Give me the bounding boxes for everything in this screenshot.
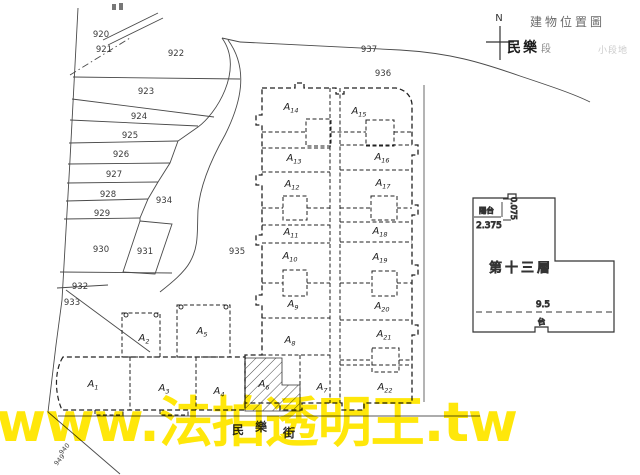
unit-label-a19: A19 bbox=[371, 252, 387, 265]
parcel-label: 923 bbox=[138, 87, 154, 97]
unit-label-a15: A15 bbox=[350, 106, 366, 119]
parcel-label: 927 bbox=[106, 170, 122, 180]
parcel-label: 929 bbox=[94, 209, 110, 219]
parcel-label: 934 bbox=[156, 196, 172, 206]
parcel-label: 930 bbox=[93, 245, 109, 255]
site-plan-scan: 920 921 922 923 924 925 926 927 928 929 … bbox=[0, 0, 640, 475]
unit-label-a12: A12 bbox=[283, 179, 299, 192]
parcel-label: 925 bbox=[122, 131, 138, 141]
floor13-plan: 陽台 0.075 2.375 9.5 台 第十三層 bbox=[473, 194, 614, 332]
double-track-lines bbox=[103, 13, 163, 45]
section-suffix: 段 bbox=[541, 42, 551, 55]
parcel-label: 932 bbox=[72, 282, 88, 292]
parcel-label: 926 bbox=[113, 150, 129, 160]
parcel-label: 933 bbox=[64, 298, 80, 308]
unit-label-a9: A9 bbox=[287, 299, 299, 312]
unit-label-a5: A5 bbox=[196, 326, 208, 339]
watermark-text: www.法拍透明王.tw bbox=[0, 396, 640, 450]
section-name: 民樂 bbox=[507, 39, 539, 56]
ink-marks bbox=[112, 3, 123, 10]
parcel-label: 920 bbox=[93, 30, 109, 40]
parcel-label: 935 bbox=[229, 247, 245, 257]
building-inner-walls bbox=[262, 88, 412, 403]
parcel-label: 931 bbox=[137, 247, 153, 257]
map-header: N 建物位置圖 民樂 段 小段地 bbox=[486, 13, 628, 60]
unit-label-a21: A21 bbox=[375, 329, 391, 342]
survey-point-circles bbox=[124, 305, 228, 317]
unit-label-a18: A18 bbox=[371, 226, 387, 239]
unit-label-a17: A17 bbox=[374, 178, 391, 191]
unit-label-a20: A20 bbox=[373, 301, 389, 314]
balcony-mark: 台 bbox=[537, 316, 547, 327]
dash-dot-line bbox=[70, 38, 130, 75]
lane-left-edge bbox=[140, 38, 230, 221]
dim-2375: 2.375 bbox=[476, 221, 502, 231]
parcel-label: 936 bbox=[375, 69, 391, 79]
parcel-label: 924 bbox=[131, 112, 147, 122]
unit-label-a16: A16 bbox=[373, 152, 389, 165]
unit-label-a14: A14 bbox=[282, 102, 298, 115]
parcel-label: 922 bbox=[168, 49, 184, 59]
faint-margin-note: 小段地 bbox=[598, 44, 628, 56]
unit-label-a2: A2 bbox=[138, 333, 150, 346]
balcony-label: 陽台 bbox=[479, 205, 494, 215]
parcel-label: 937 bbox=[361, 45, 377, 55]
floor13-label: 第十三層 bbox=[489, 261, 553, 276]
parcel-label: 928 bbox=[100, 190, 116, 200]
unit-label-a8: A8 bbox=[284, 335, 296, 348]
north-label: N bbox=[495, 13, 502, 24]
main-building bbox=[245, 83, 418, 411]
parcel-label: 921 bbox=[96, 45, 112, 55]
map-title: 建物位置圖 bbox=[530, 14, 605, 29]
dim-0075: 0.075 bbox=[509, 197, 518, 220]
left-boundary-line bbox=[48, 8, 78, 412]
unit-label-a11: A11 bbox=[282, 227, 298, 240]
unit-label-a13: A13 bbox=[285, 153, 301, 166]
unit-label-a1: A1 bbox=[87, 379, 99, 392]
unit-label-a10: A10 bbox=[281, 251, 297, 264]
dim-95: 9.5 bbox=[536, 300, 550, 310]
